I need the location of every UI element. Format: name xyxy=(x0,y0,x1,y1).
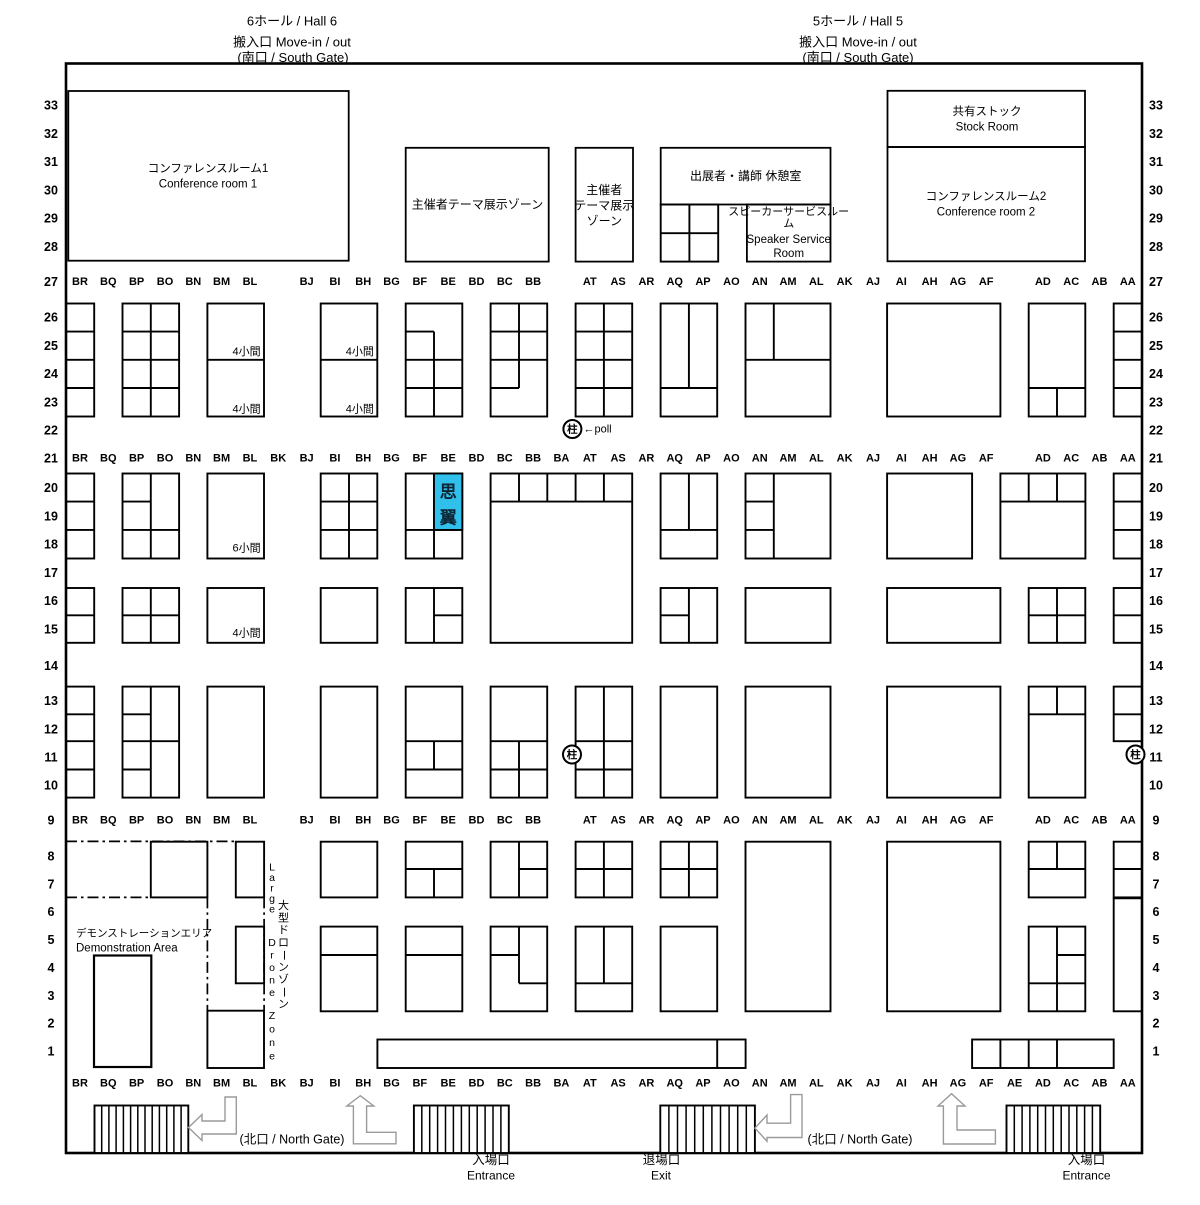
svg-text:4: 4 xyxy=(1153,961,1160,975)
svg-text:AN: AN xyxy=(752,276,768,288)
svg-text:AD: AD xyxy=(1035,1077,1051,1089)
svg-text:(北口 / North Gate): (北口 / North Gate) xyxy=(808,1133,913,1147)
svg-text:AC: AC xyxy=(1063,276,1079,288)
svg-text:24: 24 xyxy=(44,367,58,381)
svg-text:BR: BR xyxy=(72,1077,88,1089)
svg-text:15: 15 xyxy=(1149,622,1163,636)
svg-text:BQ: BQ xyxy=(100,1077,117,1089)
svg-text:BN: BN xyxy=(185,815,201,827)
svg-text:BE: BE xyxy=(441,452,456,464)
svg-text:5: 5 xyxy=(1153,933,1160,947)
svg-text:BR: BR xyxy=(72,452,88,464)
svg-text:1: 1 xyxy=(1153,1045,1160,1059)
svg-text:Z: Z xyxy=(269,1010,276,1022)
svg-text:AS: AS xyxy=(610,1077,625,1089)
svg-text:4小間: 4小間 xyxy=(232,345,260,358)
svg-text:BD: BD xyxy=(469,815,485,827)
svg-text:出展者・講師 休憩室: 出展者・講師 休憩室 xyxy=(690,168,801,183)
svg-text:AL: AL xyxy=(809,452,824,464)
svg-text:BP: BP xyxy=(129,1077,144,1089)
svg-text:BG: BG xyxy=(383,452,400,464)
svg-text:r: r xyxy=(270,950,274,962)
svg-text:13: 13 xyxy=(1149,694,1163,708)
svg-text:主催者テーマ展示ゾーン: 主催者テーマ展示ゾーン xyxy=(412,198,543,212)
svg-text:9: 9 xyxy=(48,814,55,828)
svg-text:31: 31 xyxy=(1149,155,1163,169)
svg-text:Speaker Service: Speaker Service xyxy=(747,234,831,246)
svg-text:BR: BR xyxy=(72,276,88,288)
svg-text:AP: AP xyxy=(695,452,710,464)
svg-text:AF: AF xyxy=(979,1077,994,1089)
svg-text:AQ: AQ xyxy=(666,452,683,464)
svg-text:AG: AG xyxy=(950,276,967,288)
svg-text:12: 12 xyxy=(44,722,58,736)
svg-text:AP: AP xyxy=(695,276,710,288)
svg-text:BM: BM xyxy=(213,276,230,288)
svg-text:BP: BP xyxy=(129,276,144,288)
svg-text:24: 24 xyxy=(1149,367,1163,381)
svg-text:BN: BN xyxy=(185,276,201,288)
svg-text:e: e xyxy=(269,1051,275,1063)
svg-text:BJ: BJ xyxy=(300,815,314,827)
svg-text:AT: AT xyxy=(583,452,597,464)
svg-text:BM: BM xyxy=(213,452,230,464)
svg-text:BA: BA xyxy=(553,452,569,464)
svg-text:AN: AN xyxy=(752,815,768,827)
svg-text:AB: AB xyxy=(1092,452,1108,464)
svg-text:AO: AO xyxy=(723,1077,740,1089)
svg-text:BM: BM xyxy=(213,815,230,827)
svg-text:主催者: 主催者 xyxy=(586,183,622,197)
svg-text:BH: BH xyxy=(355,452,371,464)
svg-text:AQ: AQ xyxy=(666,815,683,827)
svg-text:デモンストレーションエリア: デモンストレーションエリア xyxy=(76,927,212,940)
svg-text:AD: AD xyxy=(1035,815,1051,827)
svg-text:AM: AM xyxy=(779,276,796,288)
svg-text:33: 33 xyxy=(44,99,58,113)
svg-text:ン: ン xyxy=(278,998,289,1010)
svg-text:AA: AA xyxy=(1120,1077,1136,1089)
svg-text:AR: AR xyxy=(638,815,654,827)
svg-text:e: e xyxy=(269,904,275,916)
svg-text:8: 8 xyxy=(48,850,55,864)
svg-text:16: 16 xyxy=(1149,594,1163,608)
svg-text:AJ: AJ xyxy=(866,452,880,464)
svg-text:7: 7 xyxy=(1153,878,1160,892)
svg-text:AE: AE xyxy=(1007,1077,1022,1089)
svg-text:AI: AI xyxy=(896,815,907,827)
svg-text:AD: AD xyxy=(1035,276,1051,288)
svg-text:28: 28 xyxy=(44,240,58,254)
svg-text:AS: AS xyxy=(610,452,625,464)
svg-text:27: 27 xyxy=(44,275,58,289)
svg-text:BH: BH xyxy=(355,1077,371,1089)
svg-text:AA: AA xyxy=(1120,452,1136,464)
svg-text:AC: AC xyxy=(1063,452,1079,464)
svg-text:AG: AG xyxy=(950,452,967,464)
svg-text:Demonstration Area: Demonstration Area xyxy=(76,943,178,955)
svg-text:BA: BA xyxy=(553,1077,569,1089)
svg-text:AK: AK xyxy=(837,1077,853,1089)
svg-text:30: 30 xyxy=(1149,183,1163,197)
svg-text:19: 19 xyxy=(44,510,58,524)
svg-text:5: 5 xyxy=(48,933,55,947)
svg-text:AR: AR xyxy=(638,1077,654,1089)
svg-text:AL: AL xyxy=(809,815,824,827)
svg-text:6: 6 xyxy=(48,905,55,919)
svg-text:26: 26 xyxy=(44,311,58,325)
svg-text:8: 8 xyxy=(1153,850,1160,864)
svg-text:AK: AK xyxy=(837,452,853,464)
svg-text:AH: AH xyxy=(922,276,938,288)
svg-text:BP: BP xyxy=(129,452,144,464)
svg-text:o: o xyxy=(269,962,275,974)
svg-text:AS: AS xyxy=(610,815,625,827)
svg-text:AL: AL xyxy=(809,1077,824,1089)
svg-text:20: 20 xyxy=(1149,481,1163,495)
svg-text:BC: BC xyxy=(497,276,513,288)
svg-text:10: 10 xyxy=(44,778,58,792)
svg-text:BI: BI xyxy=(329,452,340,464)
svg-text:32: 32 xyxy=(1149,127,1163,141)
svg-text:BL: BL xyxy=(243,1077,258,1089)
svg-text:共有ストック: 共有ストック xyxy=(953,104,1022,118)
svg-text:AT: AT xyxy=(583,276,597,288)
svg-text:AK: AK xyxy=(837,815,853,827)
svg-text:BJ: BJ xyxy=(300,452,314,464)
svg-text:ー: ー xyxy=(278,950,290,961)
svg-text:20: 20 xyxy=(44,481,58,495)
svg-text:AG: AG xyxy=(950,815,967,827)
svg-text:BO: BO xyxy=(157,1077,174,1089)
svg-text:7: 7 xyxy=(48,878,55,892)
svg-text:AB: AB xyxy=(1092,815,1108,827)
svg-text:BB: BB xyxy=(525,1077,541,1089)
svg-text:BC: BC xyxy=(497,452,513,464)
svg-text:AH: AH xyxy=(922,452,938,464)
svg-text:ゾーン: ゾーン xyxy=(587,214,622,228)
svg-text:30: 30 xyxy=(44,183,58,197)
svg-text:17: 17 xyxy=(1149,566,1163,580)
svg-text:28: 28 xyxy=(1149,240,1163,254)
svg-text:ロ: ロ xyxy=(278,937,289,949)
svg-text:31: 31 xyxy=(44,155,58,169)
svg-text:BL: BL xyxy=(243,452,258,464)
svg-text:BE: BE xyxy=(441,276,456,288)
svg-text:2: 2 xyxy=(48,1017,55,1031)
svg-text:e: e xyxy=(269,987,275,999)
svg-text:o: o xyxy=(269,1024,275,1036)
svg-text:23: 23 xyxy=(1149,395,1163,409)
svg-text:ム: ム xyxy=(783,217,794,230)
svg-text:16: 16 xyxy=(44,594,58,608)
svg-text:BP: BP xyxy=(129,815,144,827)
svg-text:BE: BE xyxy=(441,815,456,827)
svg-text:BE: BE xyxy=(441,1077,456,1089)
svg-text:3: 3 xyxy=(1153,989,1160,1003)
svg-text:Conference room 1: Conference room 1 xyxy=(159,179,257,191)
svg-text:BG: BG xyxy=(383,1077,400,1089)
svg-text:AB: AB xyxy=(1092,276,1108,288)
svg-text:Entrance: Entrance xyxy=(1062,1169,1110,1183)
svg-text:1: 1 xyxy=(48,1045,55,1059)
svg-text:ン: ン xyxy=(278,962,289,974)
svg-text:柱: 柱 xyxy=(567,423,578,436)
svg-text:AM: AM xyxy=(779,815,796,827)
svg-text:AM: AM xyxy=(779,1077,796,1089)
svg-text:AC: AC xyxy=(1063,815,1079,827)
svg-text:5ホール / Hall 5: 5ホール / Hall 5 xyxy=(813,14,903,29)
svg-text:29: 29 xyxy=(44,212,58,226)
svg-text:BI: BI xyxy=(329,1077,340,1089)
svg-text:AH: AH xyxy=(922,1077,938,1089)
svg-text:4小間: 4小間 xyxy=(346,403,374,416)
svg-text:BG: BG xyxy=(383,815,400,827)
svg-text:スピーカーサービスルー: スピーカーサービスルー xyxy=(728,205,849,218)
svg-text:10: 10 xyxy=(1149,778,1163,792)
svg-text:AF: AF xyxy=(979,452,994,464)
svg-text:AD: AD xyxy=(1035,452,1051,464)
svg-text:(北口 / North Gate): (北口 / North Gate) xyxy=(240,1133,345,1147)
svg-text:BI: BI xyxy=(329,815,340,827)
svg-text:BH: BH xyxy=(355,276,371,288)
svg-text:大: 大 xyxy=(278,898,289,912)
svg-text:D: D xyxy=(268,937,276,949)
svg-text:AT: AT xyxy=(583,815,597,827)
svg-text:BD: BD xyxy=(469,452,485,464)
svg-text:AF: AF xyxy=(979,276,994,288)
svg-text:AI: AI xyxy=(896,452,907,464)
svg-text:12: 12 xyxy=(1149,722,1163,736)
svg-text:ド: ド xyxy=(278,925,289,937)
svg-text:BO: BO xyxy=(157,276,174,288)
svg-text:21: 21 xyxy=(1149,451,1163,465)
svg-text:n: n xyxy=(269,975,275,987)
svg-text:搬入口 Move-in / out: 搬入口 Move-in / out xyxy=(233,35,351,50)
svg-text:入場口: 入場口 xyxy=(472,1153,510,1167)
svg-text:BQ: BQ xyxy=(100,452,117,464)
svg-text:33: 33 xyxy=(1149,99,1163,113)
svg-text:AB: AB xyxy=(1092,1077,1108,1089)
svg-text:BN: BN xyxy=(185,452,201,464)
svg-text:AJ: AJ xyxy=(866,1077,880,1089)
svg-text:23: 23 xyxy=(44,395,58,409)
svg-text:←poll: ←poll xyxy=(584,424,612,436)
svg-text:BR: BR xyxy=(72,815,88,827)
svg-text:BL: BL xyxy=(243,276,258,288)
svg-text:AR: AR xyxy=(638,276,654,288)
svg-text:Exit: Exit xyxy=(651,1169,672,1183)
svg-text:Stock Room: Stock Room xyxy=(956,122,1019,134)
svg-text:コンファレンスルーム1: コンファレンスルーム1 xyxy=(148,162,268,175)
svg-text:BK: BK xyxy=(270,1077,286,1089)
svg-text:AI: AI xyxy=(896,276,907,288)
svg-text:4小間: 4小間 xyxy=(346,345,374,358)
svg-text:3: 3 xyxy=(48,989,55,1003)
svg-text:柱: 柱 xyxy=(1130,748,1141,761)
svg-text:BN: BN xyxy=(185,1077,201,1089)
svg-text:BQ: BQ xyxy=(100,815,117,827)
svg-text:26: 26 xyxy=(1149,311,1163,325)
svg-text:ー: ー xyxy=(278,987,290,998)
svg-text:AN: AN xyxy=(752,452,768,464)
svg-text:BK: BK xyxy=(270,452,286,464)
svg-text:22: 22 xyxy=(1149,423,1163,437)
svg-text:AG: AG xyxy=(950,1077,967,1089)
svg-text:13: 13 xyxy=(44,694,58,708)
svg-text:AP: AP xyxy=(695,815,710,827)
svg-text:AA: AA xyxy=(1120,276,1136,288)
svg-text:6小間: 6小間 xyxy=(232,542,260,555)
svg-text:BC: BC xyxy=(497,1077,513,1089)
svg-text:BI: BI xyxy=(329,276,340,288)
svg-text:AH: AH xyxy=(922,815,938,827)
svg-text:21: 21 xyxy=(44,451,58,465)
svg-text:9: 9 xyxy=(1153,814,1160,828)
svg-text:AS: AS xyxy=(610,276,625,288)
svg-text:BG: BG xyxy=(383,276,400,288)
svg-text:BJ: BJ xyxy=(300,1077,314,1089)
svg-text:AC: AC xyxy=(1063,1077,1079,1089)
svg-text:6: 6 xyxy=(1153,905,1160,919)
svg-text:BQ: BQ xyxy=(100,276,117,288)
svg-text:11: 11 xyxy=(44,751,57,765)
svg-text:27: 27 xyxy=(1149,275,1163,289)
svg-text:AK: AK xyxy=(837,276,853,288)
svg-text:AJ: AJ xyxy=(866,815,880,827)
svg-text:AO: AO xyxy=(723,452,740,464)
svg-text:4小間: 4小間 xyxy=(232,403,260,416)
svg-text:19: 19 xyxy=(1149,510,1163,524)
svg-text:AR: AR xyxy=(638,452,654,464)
svg-text:AL: AL xyxy=(809,276,824,288)
svg-text:AN: AN xyxy=(752,1077,768,1089)
svg-text:18: 18 xyxy=(1149,538,1163,552)
svg-text:BO: BO xyxy=(157,452,174,464)
svg-text:22: 22 xyxy=(44,423,58,437)
svg-text:14: 14 xyxy=(44,659,58,673)
svg-text:29: 29 xyxy=(1149,212,1163,226)
svg-text:Entrance: Entrance xyxy=(467,1169,515,1183)
svg-text:14: 14 xyxy=(1149,659,1163,673)
svg-text:ゾ: ゾ xyxy=(278,973,289,986)
svg-text:BB: BB xyxy=(525,815,541,827)
svg-text:BF: BF xyxy=(412,452,427,464)
svg-text:25: 25 xyxy=(44,339,58,353)
svg-text:AT: AT xyxy=(583,1077,597,1089)
svg-text:入場口: 入場口 xyxy=(1068,1153,1106,1167)
svg-text:テーマ展示: テーマ展示 xyxy=(574,199,634,213)
svg-text:柱: 柱 xyxy=(567,748,578,761)
svg-text:n: n xyxy=(269,1037,275,1049)
svg-text:退場口: 退場口 xyxy=(643,1153,681,1167)
svg-text:BF: BF xyxy=(412,815,427,827)
svg-text:6ホール / Hall 6: 6ホール / Hall 6 xyxy=(247,14,337,29)
svg-text:BD: BD xyxy=(469,276,485,288)
svg-text:11: 11 xyxy=(1149,751,1162,765)
svg-text:BC: BC xyxy=(497,815,513,827)
svg-text:AF: AF xyxy=(979,815,994,827)
svg-text:AP: AP xyxy=(695,1077,710,1089)
svg-text:AJ: AJ xyxy=(866,276,880,288)
svg-text:32: 32 xyxy=(44,127,58,141)
svg-text:BD: BD xyxy=(469,1077,485,1089)
svg-text:Conference room 2: Conference room 2 xyxy=(937,207,1035,219)
svg-text:BL: BL xyxy=(243,815,258,827)
svg-text:搬入口 Move-in / out: 搬入口 Move-in / out xyxy=(799,35,917,50)
svg-text:Room: Room xyxy=(773,248,804,260)
svg-text:17: 17 xyxy=(44,566,58,580)
svg-text:AM: AM xyxy=(779,452,796,464)
svg-text:AA: AA xyxy=(1120,815,1136,827)
svg-text:AQ: AQ xyxy=(666,1077,683,1089)
svg-text:BM: BM xyxy=(213,1077,230,1089)
svg-text:BB: BB xyxy=(525,276,541,288)
svg-text:AI: AI xyxy=(896,1077,907,1089)
svg-text:BB: BB xyxy=(525,452,541,464)
svg-text:BF: BF xyxy=(412,276,427,288)
svg-text:BJ: BJ xyxy=(300,276,314,288)
svg-text:15: 15 xyxy=(44,622,58,636)
svg-text:コンファレンスルーム2: コンファレンスルーム2 xyxy=(926,190,1046,203)
svg-text:型: 型 xyxy=(278,910,289,924)
svg-text:BF: BF xyxy=(412,1077,427,1089)
svg-text:4: 4 xyxy=(48,961,55,975)
svg-text:AO: AO xyxy=(723,815,740,827)
svg-text:18: 18 xyxy=(44,538,58,552)
svg-text:2: 2 xyxy=(1153,1017,1160,1031)
svg-text:BO: BO xyxy=(157,815,174,827)
svg-text:AQ: AQ xyxy=(666,276,683,288)
svg-text:4小間: 4小間 xyxy=(232,627,260,640)
svg-text:25: 25 xyxy=(1149,339,1163,353)
svg-text:翼: 翼 xyxy=(440,509,457,528)
svg-text:思: 思 xyxy=(440,483,457,502)
svg-text:BH: BH xyxy=(355,815,371,827)
svg-text:AO: AO xyxy=(723,276,740,288)
